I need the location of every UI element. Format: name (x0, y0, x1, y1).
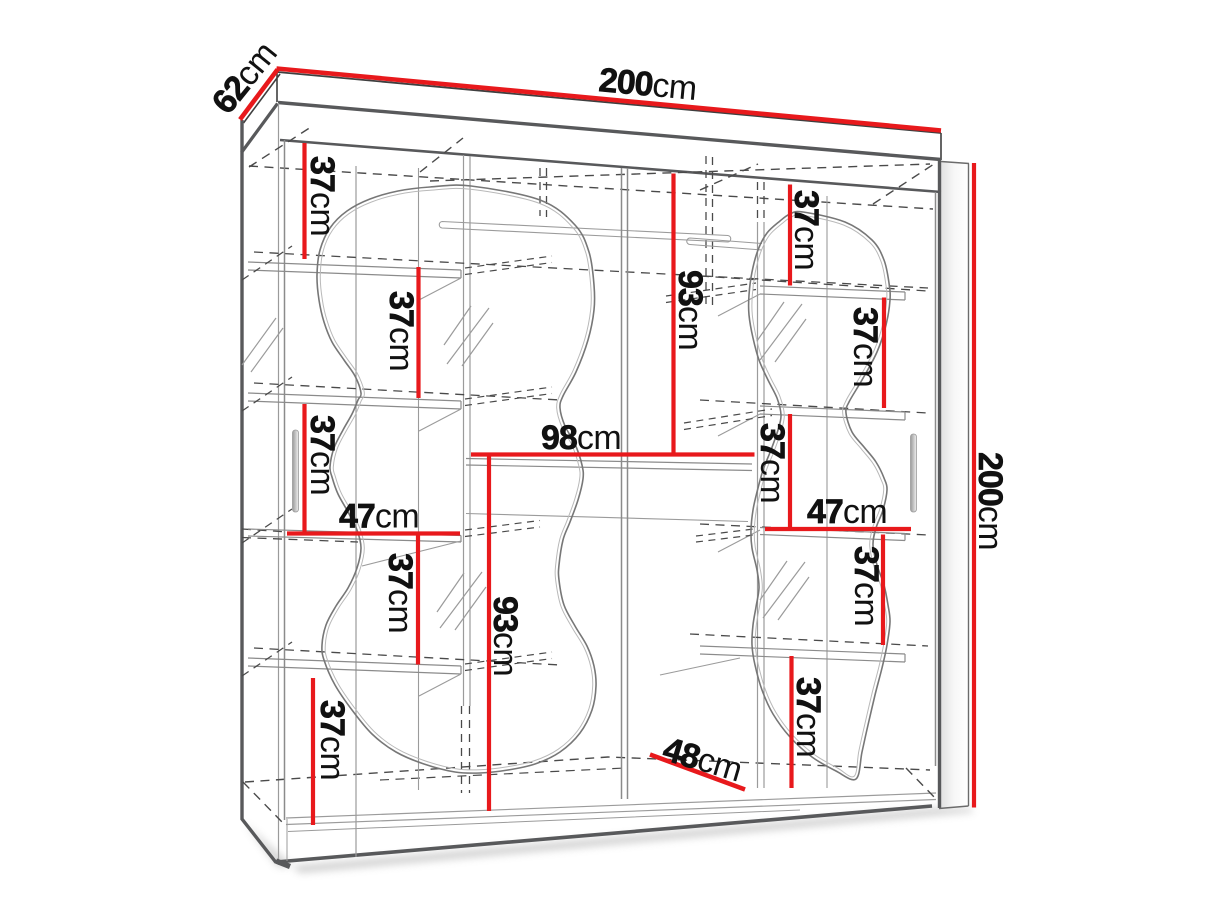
svg-text:37cm: 37cm (313, 700, 351, 780)
svg-text:37cm: 37cm (846, 307, 884, 387)
svg-text:37cm: 37cm (303, 415, 341, 495)
svg-text:37cm: 37cm (303, 156, 341, 236)
svg-text:37cm: 37cm (753, 423, 791, 503)
svg-text:37cm: 37cm (847, 546, 885, 626)
svg-text:98cm: 98cm (541, 419, 621, 457)
svg-text:47cm: 47cm (807, 493, 887, 531)
svg-text:37cm: 37cm (787, 190, 825, 270)
svg-text:93cm: 93cm (671, 270, 709, 350)
svg-text:93cm: 93cm (486, 596, 524, 676)
svg-text:47cm: 47cm (339, 498, 419, 536)
svg-text:37cm: 37cm (382, 291, 420, 371)
svg-text:37cm: 37cm (789, 677, 827, 757)
svg-text:37cm: 37cm (381, 553, 419, 633)
svg-text:200cm: 200cm (971, 452, 1009, 550)
